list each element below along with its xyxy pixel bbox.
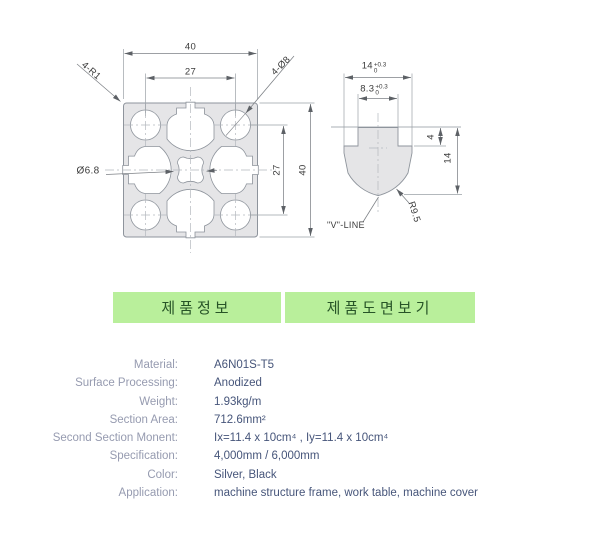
dim-value: 14 [362, 60, 373, 71]
dim-width-top: 40 [185, 42, 196, 53]
tol-min: 0 [374, 68, 386, 74]
spec-row-section-area: Section Area: 712.6mm² [0, 411, 600, 429]
technical-drawing: 40 27 4-R1 4-Ø8 Ø6.8 27 40 14+0.30 8.3+0… [0, 0, 600, 290]
spec-value: machine structure frame, work table, mac… [214, 484, 478, 502]
tol-min: 0 [375, 90, 387, 96]
spec-row-application: Application: machine structure frame, wo… [0, 484, 600, 502]
dim-value: 8.3 [360, 83, 374, 94]
spec-row-weight: Weight: 1.93kg/m [0, 393, 600, 411]
spec-table: Material: A6N01S-T5 Surface Processing: … [0, 356, 600, 502]
label-v-line: "V"-LINE [327, 220, 365, 230]
spec-value: 1.93kg/m [214, 393, 261, 411]
spec-value: 712.6mm² [214, 411, 266, 429]
spec-label: Section Area: [0, 411, 178, 429]
spec-row-material: Material: A6N01S-T5 [0, 356, 600, 374]
spec-row-color: Color: Silver, Black [0, 466, 600, 484]
drawing-canvas [0, 0, 600, 290]
spec-label: Material: [0, 356, 178, 374]
product-page: 40 27 4-R1 4-Ø8 Ø6.8 27 40 14+0.30 8.3+0… [0, 0, 600, 550]
tab-product-drawing[interactable]: 제품도면보기 [285, 292, 475, 323]
spec-value: A6N01S-T5 [214, 356, 274, 374]
dim-height-right: 40 [298, 164, 309, 175]
label-center-hole: Ø6.8 [77, 166, 100, 177]
spec-label: Color: [0, 466, 178, 484]
dim-pitch-right: 27 [272, 164, 283, 175]
slot-detail-section [331, 74, 462, 223]
spec-value: Silver, Black [214, 466, 277, 484]
profile-section [77, 49, 315, 253]
spec-row-second-moment: Second Section Monent: Ix=11.4 x 10cm⁴ ,… [0, 429, 600, 447]
spec-label: Second Section Monent: [0, 429, 178, 447]
spec-label: Application: [0, 484, 178, 502]
spec-value: Ix=11.4 x 10cm⁴ , Iy=11.4 x 10cm⁴ [214, 429, 388, 447]
spec-label: Specification: [0, 447, 178, 465]
dim-pitch-top: 27 [185, 66, 196, 77]
spec-value: 4,000mm / 6,000mm [214, 447, 319, 465]
dim-slot-width: 14+0.30 [362, 60, 387, 74]
spec-value: Anodized [214, 374, 262, 392]
spec-row-specification: Specification: 4,000mm / 6,000mm [0, 447, 600, 465]
dim-lip-depth: 4 [426, 134, 437, 140]
spec-label: Surface Processing: [0, 374, 178, 392]
tab-product-info[interactable]: 제품정보 [113, 292, 281, 323]
dim-slot-depth: 14 [443, 152, 454, 163]
spec-row-surface: Surface Processing: Anodized [0, 374, 600, 392]
dim-neck-width: 8.3+0.30 [360, 83, 388, 97]
spec-label: Weight: [0, 393, 178, 411]
